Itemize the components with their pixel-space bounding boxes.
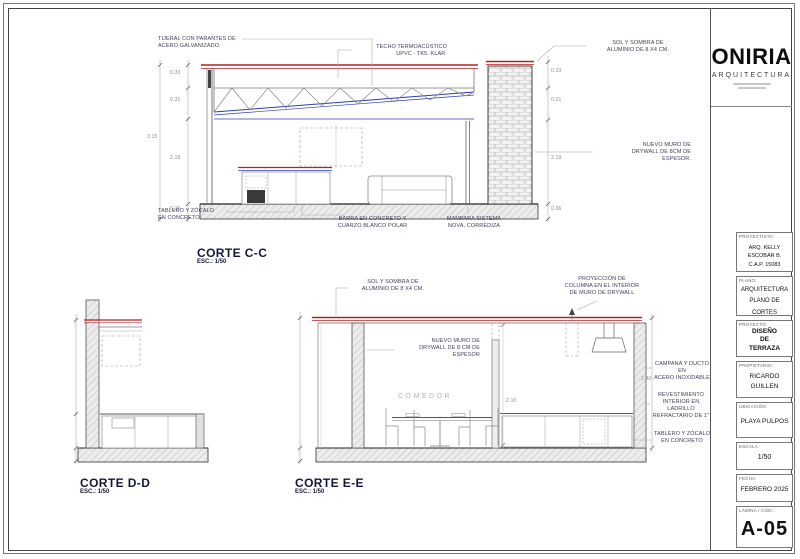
field-value: ARQ. KELLY ESCOBAR B. C.A.P. 15083 xyxy=(737,244,792,269)
titleblock-field-propietario: PROPIETARIO: RICARDO GUILLEN xyxy=(736,361,793,398)
ann-cc-barra: BARRA EN CONCRETO Y CUARZO BLANCO POLAR xyxy=(330,216,415,230)
titleblock-field-plano: PLANO: ARQUITECTURA PLANO DE CORTES xyxy=(736,276,793,316)
field-label: UBICACIÓN: xyxy=(737,403,792,409)
dim-cc-left-1: 0.33 xyxy=(170,70,181,76)
ann-cc-sol-sombra: SOL Y SOMBRA DE ALUMINIO DE 8 X4 CM. xyxy=(588,40,688,54)
room-label-comedor: COMEDOR xyxy=(398,393,452,400)
section-title-cc: CORTE C-C xyxy=(197,246,267,260)
ann-cc-techo: TECHO TERMOACÚSTICO UPVC - TK5. KLAR. xyxy=(352,44,447,58)
ann-cc-mampara: MAMPARA SISTEMA NOVA, CORREDIZA xyxy=(434,216,514,230)
dim-ee-a: 2.40 xyxy=(641,376,652,382)
dim-cc-right-4: 0.36 xyxy=(551,206,562,212)
dim-ee-b: 2.10 xyxy=(506,398,517,404)
titleblock-field-lamina: LÁMINA / CÓD.: A-05 xyxy=(736,506,793,548)
field-value: ARQUITECTURA PLANO DE CORTES xyxy=(737,285,792,319)
field-label: PROYECTO: xyxy=(737,321,792,327)
ann-ee-proyeccion: PROYECCIÓN DE COLUMNA EN EL INTERIOR DE … xyxy=(556,276,648,297)
section-title-ee: CORTE E-E xyxy=(295,476,364,490)
sheet-number: A-05 xyxy=(737,518,792,541)
titleblock-field-ubicacion: UBICACIÓN: PLAYA PULPOS xyxy=(736,402,793,438)
ann-cc-muro-drywall: NUEVO MURO DE DRYWALL DE 8CM DE ESPESOR. xyxy=(596,142,691,163)
dim-cc-left-2: 0.31 xyxy=(170,97,181,103)
firm-logo: ONIRIA ARQUITECTURA xyxy=(711,44,792,89)
section-scale-ee: ESC.: 1/50 xyxy=(295,489,324,495)
section-scale-cc: ESC.: 1/50 xyxy=(197,259,226,265)
dim-cc-right-1: 0.33 xyxy=(551,68,562,74)
ann-ee-sol-sombra: SOL Y SOMBRA DE ALUMINIO DE 8 X4 CM. xyxy=(348,279,438,293)
field-value: FEBRERO 2025 xyxy=(737,486,792,493)
logo-contact-placeholder xyxy=(733,83,771,85)
dim-cc-right-3: 2.19 xyxy=(551,155,562,161)
field-value: PLAYA PULPOS xyxy=(737,418,792,425)
corte-cc-linework xyxy=(158,39,593,222)
dim-cc-total: 3.15 xyxy=(147,134,158,140)
drawing-sheet: TIJERAL CON PARANTES DE ACERO GALVANIZAD… xyxy=(0,0,800,559)
field-label: PROPIETARIO: xyxy=(737,362,792,368)
field-label: PLANO: xyxy=(737,277,792,283)
corte-ee-linework xyxy=(298,288,654,464)
ann-cc-tijeral: TIJERAL CON PARANTES DE ACERO GALVANIZAD… xyxy=(158,36,250,50)
field-value: DISEÑO DE TERRAZA xyxy=(737,328,792,353)
titleblock-field-escala: ESCALA: 1/50 xyxy=(736,442,793,470)
field-label: ESCALA: xyxy=(737,443,792,449)
field-value: RICARDO GUILLEN xyxy=(737,372,792,392)
firm-logo-text: ONIRIA xyxy=(711,44,792,70)
corte-dd-linework xyxy=(74,300,208,464)
field-label: PROYECTISTA: xyxy=(737,233,792,239)
ann-ee-tablero: TABLERO Y ZÓCALO EN CONCRETO xyxy=(654,431,710,445)
ann-ee-muro-drywall: NUEVO MURO DE DRYWALL DE 8 CM DE ESPESOR xyxy=(396,338,480,359)
field-label: LÁMINA / CÓD.: xyxy=(737,507,792,513)
dim-cc-left-4: 0.36 xyxy=(170,206,181,212)
section-title-dd: CORTE D-D xyxy=(80,476,150,490)
titleblock-field-proyecto: PROYECTO: DISEÑO DE TERRAZA xyxy=(736,320,793,357)
firm-logo-subtitle: ARQUITECTURA xyxy=(711,72,792,79)
logo-contact-placeholder xyxy=(738,87,766,89)
dim-cc-left-3: 2.19 xyxy=(170,155,181,161)
field-label: FECHA: xyxy=(737,475,792,481)
dim-cc-right-2: 0.31 xyxy=(551,97,562,103)
ann-ee-campana: CAMPANA Y DUCTO EN ACERO INOXIDABLE xyxy=(654,361,710,382)
titleblock-field-proyectista: PROYECTISTA: ARQ. KELLY ESCOBAR B. C.A.P… xyxy=(736,232,793,272)
section-scale-dd: ESC.: 1/50 xyxy=(80,489,109,495)
field-value: 1/50 xyxy=(737,454,792,461)
titleblock-field-fecha: FECHA: FEBRERO 2025 xyxy=(736,474,793,502)
ann-ee-revestimiento: REVESTIMIENTO INTERIOR EN LADRILLO REFRA… xyxy=(652,392,710,421)
